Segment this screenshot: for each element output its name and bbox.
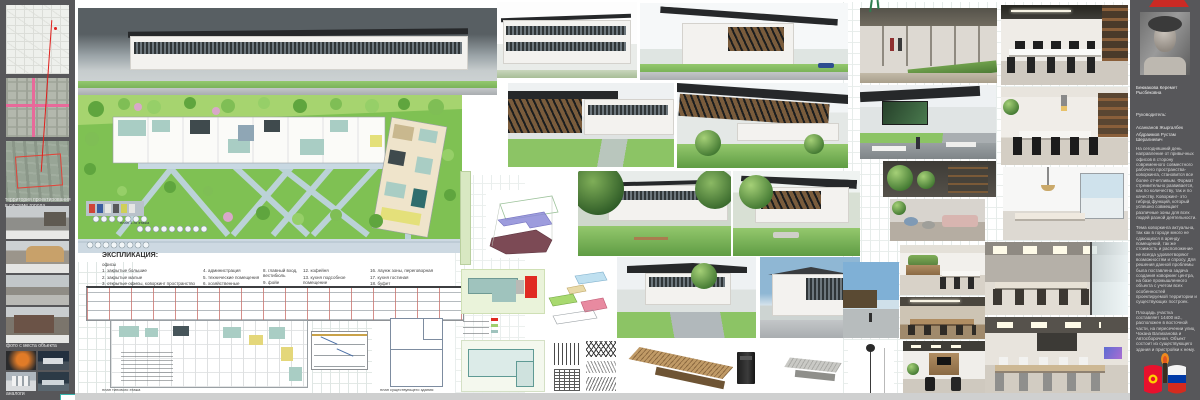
cabinet-plant <box>907 363 919 375</box>
legend-lines <box>463 318 489 334</box>
pattern-vertical-bars <box>554 343 580 365</box>
photo3-street <box>6 295 69 305</box>
city-map-photo <box>6 5 69 74</box>
student-photo-hair <box>1148 16 1182 32</box>
lounge-pouf-blue <box>904 217 918 226</box>
pattern-x-lattice <box>586 341 616 357</box>
plaza-bench-white <box>872 146 906 151</box>
aerial-map-photo <box>6 78 69 137</box>
terrace-deck <box>860 73 997 83</box>
render5-tree-2 <box>804 134 824 154</box>
interior-meeting <box>1001 87 1128 165</box>
supervisor-name-1: Асанканов Жыргалбек <box>1136 126 1196 131</box>
pattern-studies <box>552 341 618 393</box>
lamp-dim-line <box>884 348 885 394</box>
axon-diagram <box>486 190 562 258</box>
bright-pendant <box>1047 167 1049 187</box>
interior-lounge <box>890 199 985 241</box>
greenwall-plant <box>887 165 913 191</box>
site-photos-caption: фото с места объекта <box>6 344 72 350</box>
open-office-lights <box>993 246 1103 254</box>
cabinet-tv <box>937 357 951 365</box>
explication-title: ЭКСПЛИКАЦИЯ: <box>102 252 158 259</box>
site-plan: план 1-го этажа <box>78 95 462 253</box>
render1-road <box>78 88 497 95</box>
elevation-drawing <box>86 286 464 321</box>
render1-glazing <box>134 42 462 54</box>
aerial-road-h <box>6 104 69 107</box>
massing-sketches <box>545 268 612 332</box>
scheme-plan-1 <box>461 269 545 314</box>
plan-room-teal-3 <box>223 327 241 338</box>
cabinet-lights <box>911 345 971 348</box>
meeting-pendant <box>1061 95 1067 111</box>
meeting-chairs <box>1013 137 1099 155</box>
render8-tree <box>691 263 717 289</box>
site-photo-1 <box>6 206 69 239</box>
bin-render <box>733 350 760 388</box>
desks-row <box>995 365 1105 371</box>
render8-roof <box>627 263 747 273</box>
plaza-screen <box>882 101 928 125</box>
desks-accent-wall <box>1037 333 1077 351</box>
office1-light <box>1011 10 1071 12</box>
scheme2-wing <box>516 361 534 387</box>
pattern-zigzag <box>586 361 616 373</box>
analog-thumb-1 <box>6 351 36 370</box>
coworking-chairs <box>940 277 982 289</box>
analog-thumb-4 <box>38 372 69 391</box>
desks-blue-glow <box>1104 347 1122 359</box>
render-exterior-front <box>78 8 497 95</box>
interior-coworking <box>900 245 985 295</box>
render7-tree <box>739 175 773 209</box>
render3-plaza <box>640 72 848 80</box>
lounge-sofa-pink <box>942 215 978 227</box>
desks-chairs <box>995 373 1107 391</box>
office1-shelf <box>1102 5 1128 61</box>
render-exterior-white <box>497 2 637 78</box>
bin-slot <box>740 356 752 360</box>
info-panel: Бекмакова Керемет Рысбековна Руководител… <box>1130 0 1200 400</box>
terrace-person <box>890 38 894 51</box>
project-description-2: Тема коворкинга актуальна, так как в гор… <box>1136 225 1197 304</box>
pattern-dense-hatch <box>554 369 580 391</box>
render3-car <box>818 63 834 68</box>
office1-desk <box>1009 49 1101 55</box>
existing-plan-wing <box>423 318 443 340</box>
lounge-pouf-gray <box>922 221 935 229</box>
student-photo-sweater <box>1144 57 1186 75</box>
scheme1-mass-teal-2 <box>492 292 516 302</box>
bright-desk <box>1015 213 1085 219</box>
analogs-caption: аналоги <box>6 392 66 398</box>
university-emblem <box>1142 352 1188 396</box>
interior-cabinet <box>903 341 985 397</box>
coworking-ceiling <box>900 245 985 253</box>
render4-facade <box>508 99 582 133</box>
photo2-building <box>26 246 64 262</box>
plaza-bench-white-2 <box>946 142 976 147</box>
plaza-roof <box>860 86 980 102</box>
coworking-desks <box>942 271 980 276</box>
project-description-1: На сегодняшний день направление от привы… <box>1136 146 1197 220</box>
supervisor-name-2: Абдраимов Рустам Шералиевич <box>1136 133 1196 143</box>
map-marker-dot <box>54 27 57 30</box>
render5-base <box>737 123 839 141</box>
plaza-person <box>916 137 920 149</box>
wood-office-desks <box>910 319 974 324</box>
thumb4-building <box>42 380 64 385</box>
render-park-1 <box>578 171 731 256</box>
render4-glazing <box>588 105 668 115</box>
lounge-plant <box>892 201 906 215</box>
explication-item: 16. лаунж зоны, переговорная <box>370 268 450 273</box>
photo1-building <box>44 212 66 226</box>
greenwall-shelves <box>948 165 988 193</box>
site-photo-4 <box>6 307 69 343</box>
existing-plan-divider <box>391 349 442 350</box>
presentation-board: территория проектирования в системе горо… <box>0 0 1200 400</box>
render8-lawn <box>617 312 756 338</box>
pattern-wave <box>586 377 616 391</box>
render10-building <box>843 290 877 308</box>
site-plan-legend-strip <box>460 171 471 265</box>
bottom-strip <box>75 393 1130 400</box>
plan-room-teal-2 <box>145 328 158 337</box>
typical-plan-caption: план типового этажа <box>102 388 140 392</box>
torch-flags-icon <box>1142 352 1188 396</box>
plan-room-dark <box>173 326 189 336</box>
plan-room-yellow-2 <box>281 347 293 361</box>
render9-glazing <box>806 278 846 300</box>
office1-monitors <box>1015 41 1095 49</box>
plan-room-teal-4 <box>269 327 285 339</box>
render-green-interior <box>883 161 996 197</box>
project-description-3: Площадь участка составляет 14400 м2., ра… <box>1136 310 1197 352</box>
open-office-glass-wall <box>1090 242 1128 315</box>
desks-monitors <box>999 357 1099 365</box>
cabinet-chair-2 <box>951 377 961 391</box>
render2-glazing <box>506 26 626 35</box>
thumb2-building <box>43 358 63 364</box>
bench-render <box>625 342 743 394</box>
office1-chairs <box>1007 57 1103 73</box>
photo4-building <box>14 315 54 333</box>
scheme-legend <box>463 316 507 336</box>
terrace-columns <box>860 26 997 66</box>
legend-swatch-red <box>491 318 498 321</box>
explication-item: 9. фойе <box>263 280 303 285</box>
left-photo-panel: территория проектирования в системе горо… <box>0 0 75 400</box>
plan-room-teal-1 <box>119 326 139 337</box>
site-outline <box>15 153 63 188</box>
supervisor-label: Руководитель: <box>1136 113 1196 118</box>
terrace-person-2 <box>898 38 902 51</box>
render6-lawn <box>578 226 731 256</box>
render2-lawn <box>497 70 637 78</box>
plan-legend-lines <box>121 351 173 381</box>
site-aerial-photo <box>6 141 69 202</box>
wood-office-chairs <box>908 325 976 335</box>
render-courtyard <box>508 83 674 167</box>
render-exterior-canopy <box>640 3 848 80</box>
meeting-plant <box>1003 99 1019 115</box>
student-name: Бекмакова Керемет Рысбековна <box>1136 86 1196 96</box>
analog-thumb-2 <box>38 351 69 370</box>
interior-desks <box>985 317 1128 397</box>
render7-stone-bench <box>773 232 799 238</box>
section-drawing <box>311 331 368 370</box>
project-description: На сегодняшний день направление от привы… <box>1136 146 1197 357</box>
site-photo-3 <box>6 275 69 305</box>
explication-item: 13. кухня подсобное помещение <box>303 275 369 285</box>
aerial-road-v <box>32 78 35 137</box>
explication-item: 12. кофейня <box>303 268 369 273</box>
student-photo <box>1140 12 1190 75</box>
explication-item: 2. закрытые малые <box>102 275 198 280</box>
render2-glazing-2 <box>506 42 626 51</box>
render-park-2 <box>733 171 860 256</box>
explication-item: 8. главный вход, вестибюль <box>263 268 303 278</box>
render-gallery <box>677 83 848 168</box>
explication-group-label: офисы <box>102 262 116 267</box>
terrace-canopy <box>860 8 997 26</box>
bright-pendant-shade <box>1041 185 1055 191</box>
render10-person <box>869 313 872 322</box>
emblem-top-shape <box>1149 0 1189 7</box>
desks-lights <box>997 322 1101 328</box>
interior-wood-office <box>900 297 985 339</box>
explication-item: 17. кухня гостиная <box>370 275 450 280</box>
lamp-head <box>866 344 875 352</box>
map-roads <box>6 5 69 74</box>
interior-bright <box>1003 167 1128 240</box>
render3-lattice <box>728 27 784 51</box>
coworking-planter-box <box>906 265 940 275</box>
existing-plan-caption: план существующего здания <box>380 388 433 392</box>
explication-col-1: 1. закрытые большие 2. закрытые малые 3.… <box>102 268 198 288</box>
scheme-plan-2 <box>461 340 545 392</box>
render4-lawn <box>508 139 674 167</box>
render-plaza <box>860 85 996 159</box>
concrete-bench-top <box>784 358 841 373</box>
lamp-drawing <box>848 340 894 397</box>
lamp-post <box>870 350 871 394</box>
concrete-bench-render <box>783 352 843 386</box>
site-photo-2 <box>6 241 69 273</box>
greenwall-plant-2 <box>917 171 935 189</box>
site-plan-graphic <box>78 95 462 253</box>
meeting-shelf <box>1098 93 1128 137</box>
analog-thumb-3 <box>6 372 36 391</box>
scheme1-mass-red <box>525 276 537 298</box>
cabinet-chair <box>925 377 935 391</box>
explication-item: 4. администрация <box>203 268 261 273</box>
interior-office-1 <box>1001 5 1128 85</box>
render-street <box>843 262 899 338</box>
legend-swatch-green <box>491 324 498 327</box>
render-entrance <box>617 257 756 338</box>
legend-swatch-teal <box>491 330 498 333</box>
existing-building-plan <box>390 318 443 387</box>
render4-band <box>508 91 618 99</box>
typical-floor-plan <box>110 320 308 388</box>
wood-office-light <box>910 300 960 302</box>
section-roofline <box>312 334 367 336</box>
bright-window <box>1080 173 1124 219</box>
interior-open-office <box>985 242 1128 315</box>
plan-room-teal-5 <box>289 367 302 381</box>
open-office-desks <box>995 282 1087 288</box>
site-plan-caption: план 1-го этажа <box>120 221 149 225</box>
render-terrace <box>860 8 997 83</box>
open-office-chairs <box>993 289 1089 305</box>
render6-bench <box>634 237 668 240</box>
thumb3-towers <box>12 376 30 386</box>
aerial-blocks <box>6 78 69 137</box>
render5-tree <box>695 130 721 156</box>
explication-item: 5. технические помещения <box>203 275 261 280</box>
render6-tree-2 <box>695 171 731 209</box>
explication-item: 1. закрытые большие <box>102 268 198 273</box>
scheme1-mass-gray <box>516 280 524 294</box>
plan-room-yellow-1 <box>249 335 263 345</box>
